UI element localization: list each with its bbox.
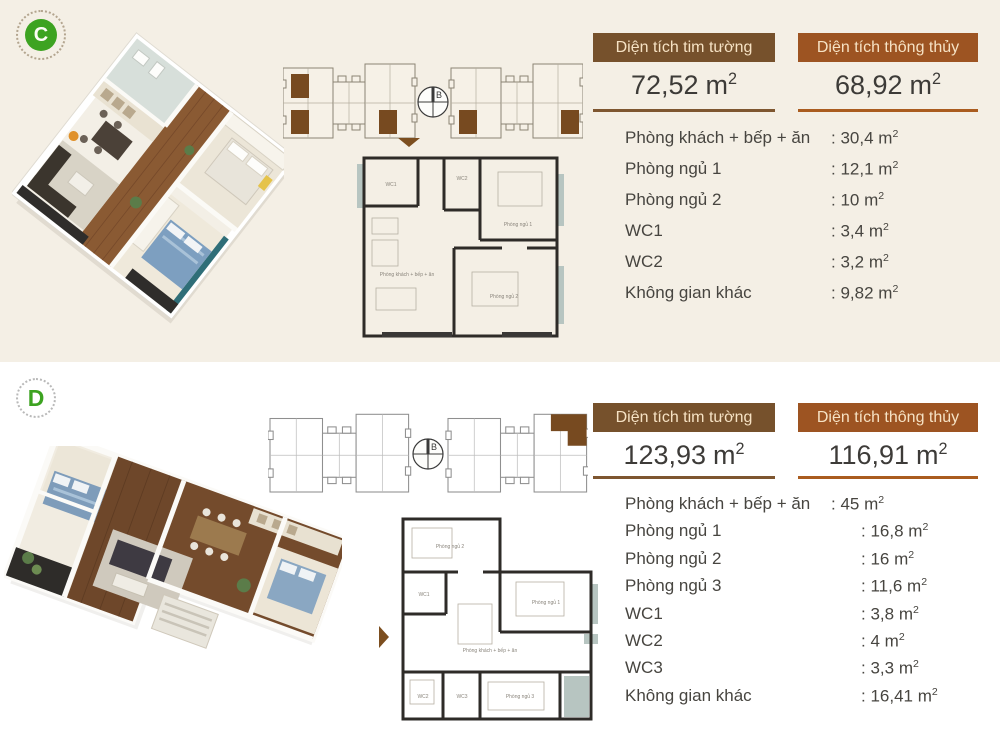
metric-title-thong-thuy-d: Diện tích thông thủy (798, 403, 978, 432)
room-area-value: : 16 m2 (861, 549, 914, 570)
svg-text:Phòng ngủ 1: Phòng ngủ 1 (532, 599, 561, 606)
divider-rule (798, 109, 978, 112)
room-label: WC2 (625, 631, 663, 651)
room-area-value: : 16,8 m2 (861, 521, 928, 542)
svg-text:WC2: WC2 (417, 694, 428, 700)
room-row: Phòng khách + bếp + ăn : 45 m2 (593, 494, 985, 521)
room-area-value: : 30,4 m2 (831, 128, 898, 149)
svg-text:B: B (431, 442, 437, 452)
area-number: 72,52 (631, 70, 699, 101)
svg-text:WC2: WC2 (456, 176, 467, 182)
svg-text:Phòng ngủ 3: Phòng ngủ 3 (506, 693, 535, 700)
highlighted-unit-c (291, 74, 309, 98)
metric-value-thong-thuy-c: 68,92 m2 (798, 70, 978, 106)
room-label: Phòng ngủ 2 (625, 549, 721, 569)
room-label: WC1 (625, 604, 663, 624)
svg-text:WC1: WC1 (418, 592, 429, 598)
down-arrow-icon (398, 138, 420, 147)
svg-text:Phòng khách + bếp + ăn: Phòng khách + bếp + ăn (463, 648, 518, 654)
area-unit: m2 (916, 440, 948, 471)
room-row: WC2 : 3,2 m2 (593, 252, 985, 283)
area-unit: m2 (910, 70, 942, 101)
room-area-value: : 12,1 m2 (831, 159, 898, 180)
room-area-value: : 10 m2 (831, 190, 884, 211)
room-row: Không gian khác : 9,82 m2 (593, 283, 985, 314)
apartment-3d-render-d (4, 446, 342, 708)
highlighted-unit-c (291, 110, 309, 134)
highlighted-unit-c (459, 110, 477, 134)
room-label: Không gian khác (625, 283, 752, 303)
svg-text:WC1: WC1 (385, 182, 396, 188)
room-label: Không gian khác (625, 686, 752, 706)
metric-value-thong-thuy-d: 116,91 m2 (798, 440, 978, 476)
room-area-list-d: Phòng khách + bếp + ăn : 45 m2 Phòng ngủ… (593, 494, 985, 713)
area-unit: m2 (713, 440, 745, 471)
room-area-value: : 16,41 m2 (861, 686, 938, 707)
building-outline-left (283, 64, 417, 138)
room-label: WC3 (625, 658, 663, 678)
area-unit: m2 (706, 70, 738, 101)
compass-icon: B (418, 87, 448, 117)
highlighted-unit-c (379, 110, 397, 134)
room-row: Không gian khác : 16,41 m2 (593, 686, 985, 713)
room-label: Phòng ngủ 1 (625, 521, 721, 541)
metric-value-tim-tuong-d: 123,93 m2 (593, 440, 775, 476)
room-area-list-c: Phòng khách + bếp + ăn : 30,4 m2 Phòng n… (593, 128, 985, 314)
floor-plan-2d-d: Phòng ngủ 2 WC1 Phòng ngủ 1 Phòng khách … (388, 514, 606, 726)
room-area-value: : 4 m2 (861, 631, 905, 652)
svg-text:WC3: WC3 (456, 694, 467, 700)
room-label: WC2 (625, 252, 663, 272)
room-area-value: : 3,4 m2 (831, 221, 889, 242)
building-outline-right (446, 414, 588, 492)
room-area-value: : 3,8 m2 (861, 604, 919, 625)
room-area-value: : 9,82 m2 (831, 283, 898, 304)
svg-text:B: B (436, 90, 442, 100)
room-row: Phòng ngủ 2 : 16 m2 (593, 549, 985, 576)
room-row: Phòng ngủ 3 : 11,6 m2 (593, 576, 985, 603)
floor-plan-2d-c: WC1 WC2 Phòng ngủ 1 Phòng khách + bếp + … (352, 148, 584, 348)
room-label: Phòng ngủ 2 (625, 190, 721, 210)
metric-title-tim-tuong-d: Diện tích tim tường (593, 403, 775, 432)
divider-rule (593, 476, 775, 479)
svg-text:Phòng ngủ 2: Phòng ngủ 2 (436, 543, 465, 550)
room-label: Phòng khách + bếp + ăn (625, 128, 810, 148)
room-area-value: : 45 m2 (831, 494, 884, 515)
room-label: Phòng ngủ 1 (625, 159, 721, 179)
svg-text:Phòng ngủ 2: Phòng ngủ 2 (490, 293, 519, 300)
apartment-type-c-section: C (0, 0, 1000, 362)
room-row: Phòng ngủ 2 : 10 m2 (593, 190, 985, 221)
apartment-type-d-section: D B (0, 362, 1000, 729)
highlighted-unit-c (561, 110, 579, 134)
metric-title-thong-thuy-c: Diện tích thông thủy (798, 33, 978, 62)
metric-title-tim-tuong-c: Diện tích tim tường (593, 33, 775, 62)
room-area-value: : 11,6 m2 (861, 576, 927, 597)
room-row: Phòng ngủ 1 : 12,1 m2 (593, 159, 985, 190)
divider-rule (593, 109, 775, 112)
divider-rule (798, 476, 978, 479)
area-number: 68,92 (835, 70, 903, 101)
building-outline-right (449, 64, 583, 138)
room-label: Phòng ngủ 3 (625, 576, 721, 596)
room-row: Phòng ngủ 1 : 16,8 m2 (593, 521, 985, 548)
room-row: WC1 : 3,8 m2 (593, 604, 985, 631)
room-row: WC1 : 3,4 m2 (593, 221, 985, 252)
metric-value-tim-tuong-c: 72,52 m2 (593, 70, 775, 106)
room-row: WC3 : 3,3 m2 (593, 658, 985, 685)
apartment-3d-render-c (12, 18, 284, 336)
type-d-badge: D (16, 378, 56, 418)
svg-text:Phòng ngủ 1: Phòng ngủ 1 (504, 221, 533, 228)
area-number: 116,91 (828, 440, 909, 471)
floor-key-plan-c: B (283, 56, 583, 148)
room-label: Phòng khách + bếp + ăn (625, 494, 810, 514)
room-area-value: : 3,3 m2 (861, 658, 919, 679)
area-number: 123,93 (623, 440, 706, 471)
compass-icon: B (413, 439, 443, 469)
room-area-value: : 3,2 m2 (831, 252, 889, 273)
type-d-badge-letter: D (28, 387, 45, 410)
room-row: Phòng khách + bếp + ăn : 30,4 m2 (593, 128, 985, 159)
room-label: WC1 (625, 221, 663, 241)
svg-text:Phòng khách + bếp + ăn: Phòng khách + bếp + ăn (380, 272, 435, 278)
room-row: WC2 : 4 m2 (593, 631, 985, 658)
